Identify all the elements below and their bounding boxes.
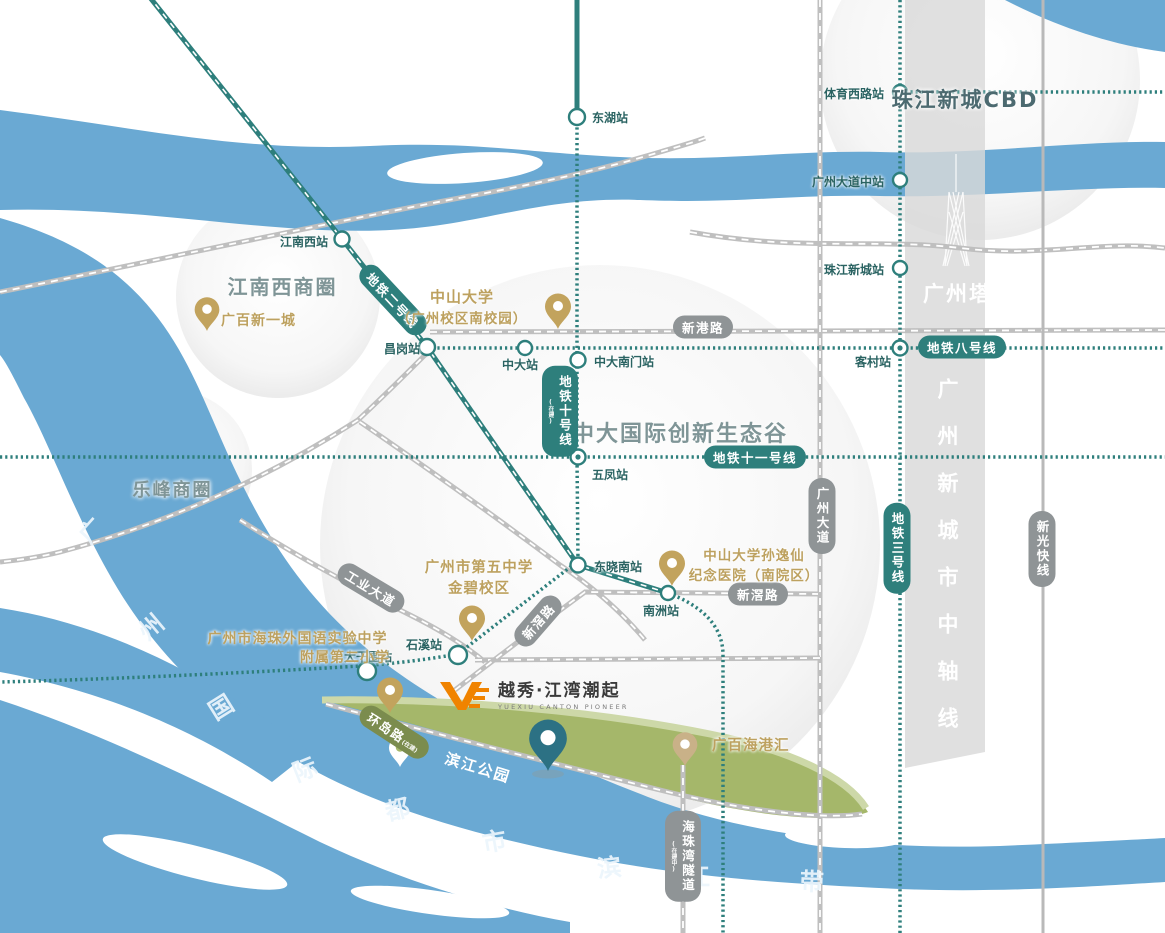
poi-hospital-line1: 中山大学孙逸仙 bbox=[683, 544, 825, 564]
area-zhujiang-cbd: 珠江新城CBD bbox=[855, 84, 1075, 114]
poi-guangbai-haigang: 广百海港汇 bbox=[712, 734, 790, 755]
station-label-wufeng: 五凤站 bbox=[592, 466, 628, 483]
yuexiu-logo-icon bbox=[438, 676, 490, 716]
area-valley: 中大国际创新生态谷 bbox=[550, 416, 810, 448]
haizhuwan-tunnel-note: (在建中) bbox=[669, 821, 678, 893]
station-label-dongxiaonan: 东晓南站 bbox=[594, 558, 642, 575]
poi-hospital: 中山大学孙逸仙 纪念医院（南院区） bbox=[683, 544, 825, 584]
area-new-axis: 广州新城市中轴线 bbox=[932, 356, 962, 776]
xingang-road-pill: 新港路 bbox=[673, 316, 733, 339]
project-name-cn: 越秀·江湾潮起 bbox=[498, 676, 629, 701]
poi-foreign-school-line2: 附属第二小学 bbox=[270, 647, 420, 667]
xinjiao-road-pill: 新滘路 bbox=[728, 583, 788, 606]
river-belt-char: 滨 bbox=[595, 847, 623, 884]
poi-sysu: 中山大学 （广州校区南校园） bbox=[378, 286, 546, 327]
poi-guangbai-xinyicheng: 广百新一城 bbox=[221, 310, 296, 330]
river-belt-char: 带 bbox=[799, 862, 824, 898]
metro-line10-label: 地铁十号线 bbox=[557, 375, 572, 448]
haizhuwan-tunnel-label: 海珠湾隧道 bbox=[680, 820, 695, 893]
metro-line10-note: (在建) bbox=[546, 376, 555, 448]
station-label-zhongda: 中大站 bbox=[502, 356, 538, 373]
station-label-kecun: 客村站 bbox=[855, 353, 891, 370]
metro-line8-pill: 地铁八号线 bbox=[918, 336, 1006, 359]
station-label-donghu: 东湖站 bbox=[592, 109, 628, 126]
area-jiangnanxi: 江南西商圈 bbox=[190, 271, 375, 300]
metro-line10-pill: 地铁十号线(在建) bbox=[542, 366, 578, 457]
xinguang-expressway-pill: 新光快线 bbox=[1029, 511, 1056, 587]
station-label-tiyuxilu: 体育西路站 bbox=[800, 85, 884, 102]
station-label-zhongda-nanmen: 中大南门站 bbox=[594, 353, 654, 370]
location-map: 珠江新城CBD 广州塔 江南西商圈 乐峰商圈 中大国际创新生态谷 广州新城市中轴… bbox=[0, 0, 1165, 933]
poi-foreign-school-line1: 广州市海珠外国语实验中学 bbox=[200, 628, 395, 648]
project-logo[interactable]: 越秀·江湾潮起 YUEXIU CANTON PIONEER bbox=[438, 676, 629, 716]
map-canvas bbox=[0, 0, 1165, 933]
poi-school5-line1: 广州市第五中学 bbox=[405, 556, 553, 577]
project-name-en: YUEXIU CANTON PIONEER bbox=[498, 703, 629, 711]
station-label-nanzhou: 南洲站 bbox=[643, 602, 679, 619]
metro-line11-pill: 地铁十一号线 bbox=[704, 446, 806, 469]
station-label-jiangnanxi: 江南西站 bbox=[248, 233, 328, 250]
area-canton-tower: 广州塔 bbox=[905, 278, 1010, 308]
huandao-road-note: (在建) bbox=[400, 739, 418, 754]
poi-sysu-line1: 中山大学 bbox=[378, 286, 546, 307]
metro-line3-pill: 地铁三号线 bbox=[884, 503, 911, 594]
guangzhou-dadao-pill: 广州大道 bbox=[809, 478, 836, 554]
station-label-zhujiang-xincheng: 珠江新城站 bbox=[800, 261, 884, 278]
area-lefeng: 乐峰商圈 bbox=[110, 476, 235, 502]
station-label-changgang: 昌岗站 bbox=[384, 340, 420, 357]
poi-school5-line2: 金碧校区 bbox=[405, 577, 553, 598]
poi-hospital-line2: 纪念医院（南院区） bbox=[683, 564, 825, 584]
poi-school5: 广州市第五中学 金碧校区 bbox=[405, 556, 553, 598]
station-label-guangzhou-dadao-zhong: 广州大道中站 bbox=[788, 173, 884, 190]
haizhuwan-tunnel-pill: 海珠湾隧道(在建中) bbox=[665, 811, 701, 902]
poi-sysu-line2: （广州校区南校园） bbox=[378, 307, 546, 327]
